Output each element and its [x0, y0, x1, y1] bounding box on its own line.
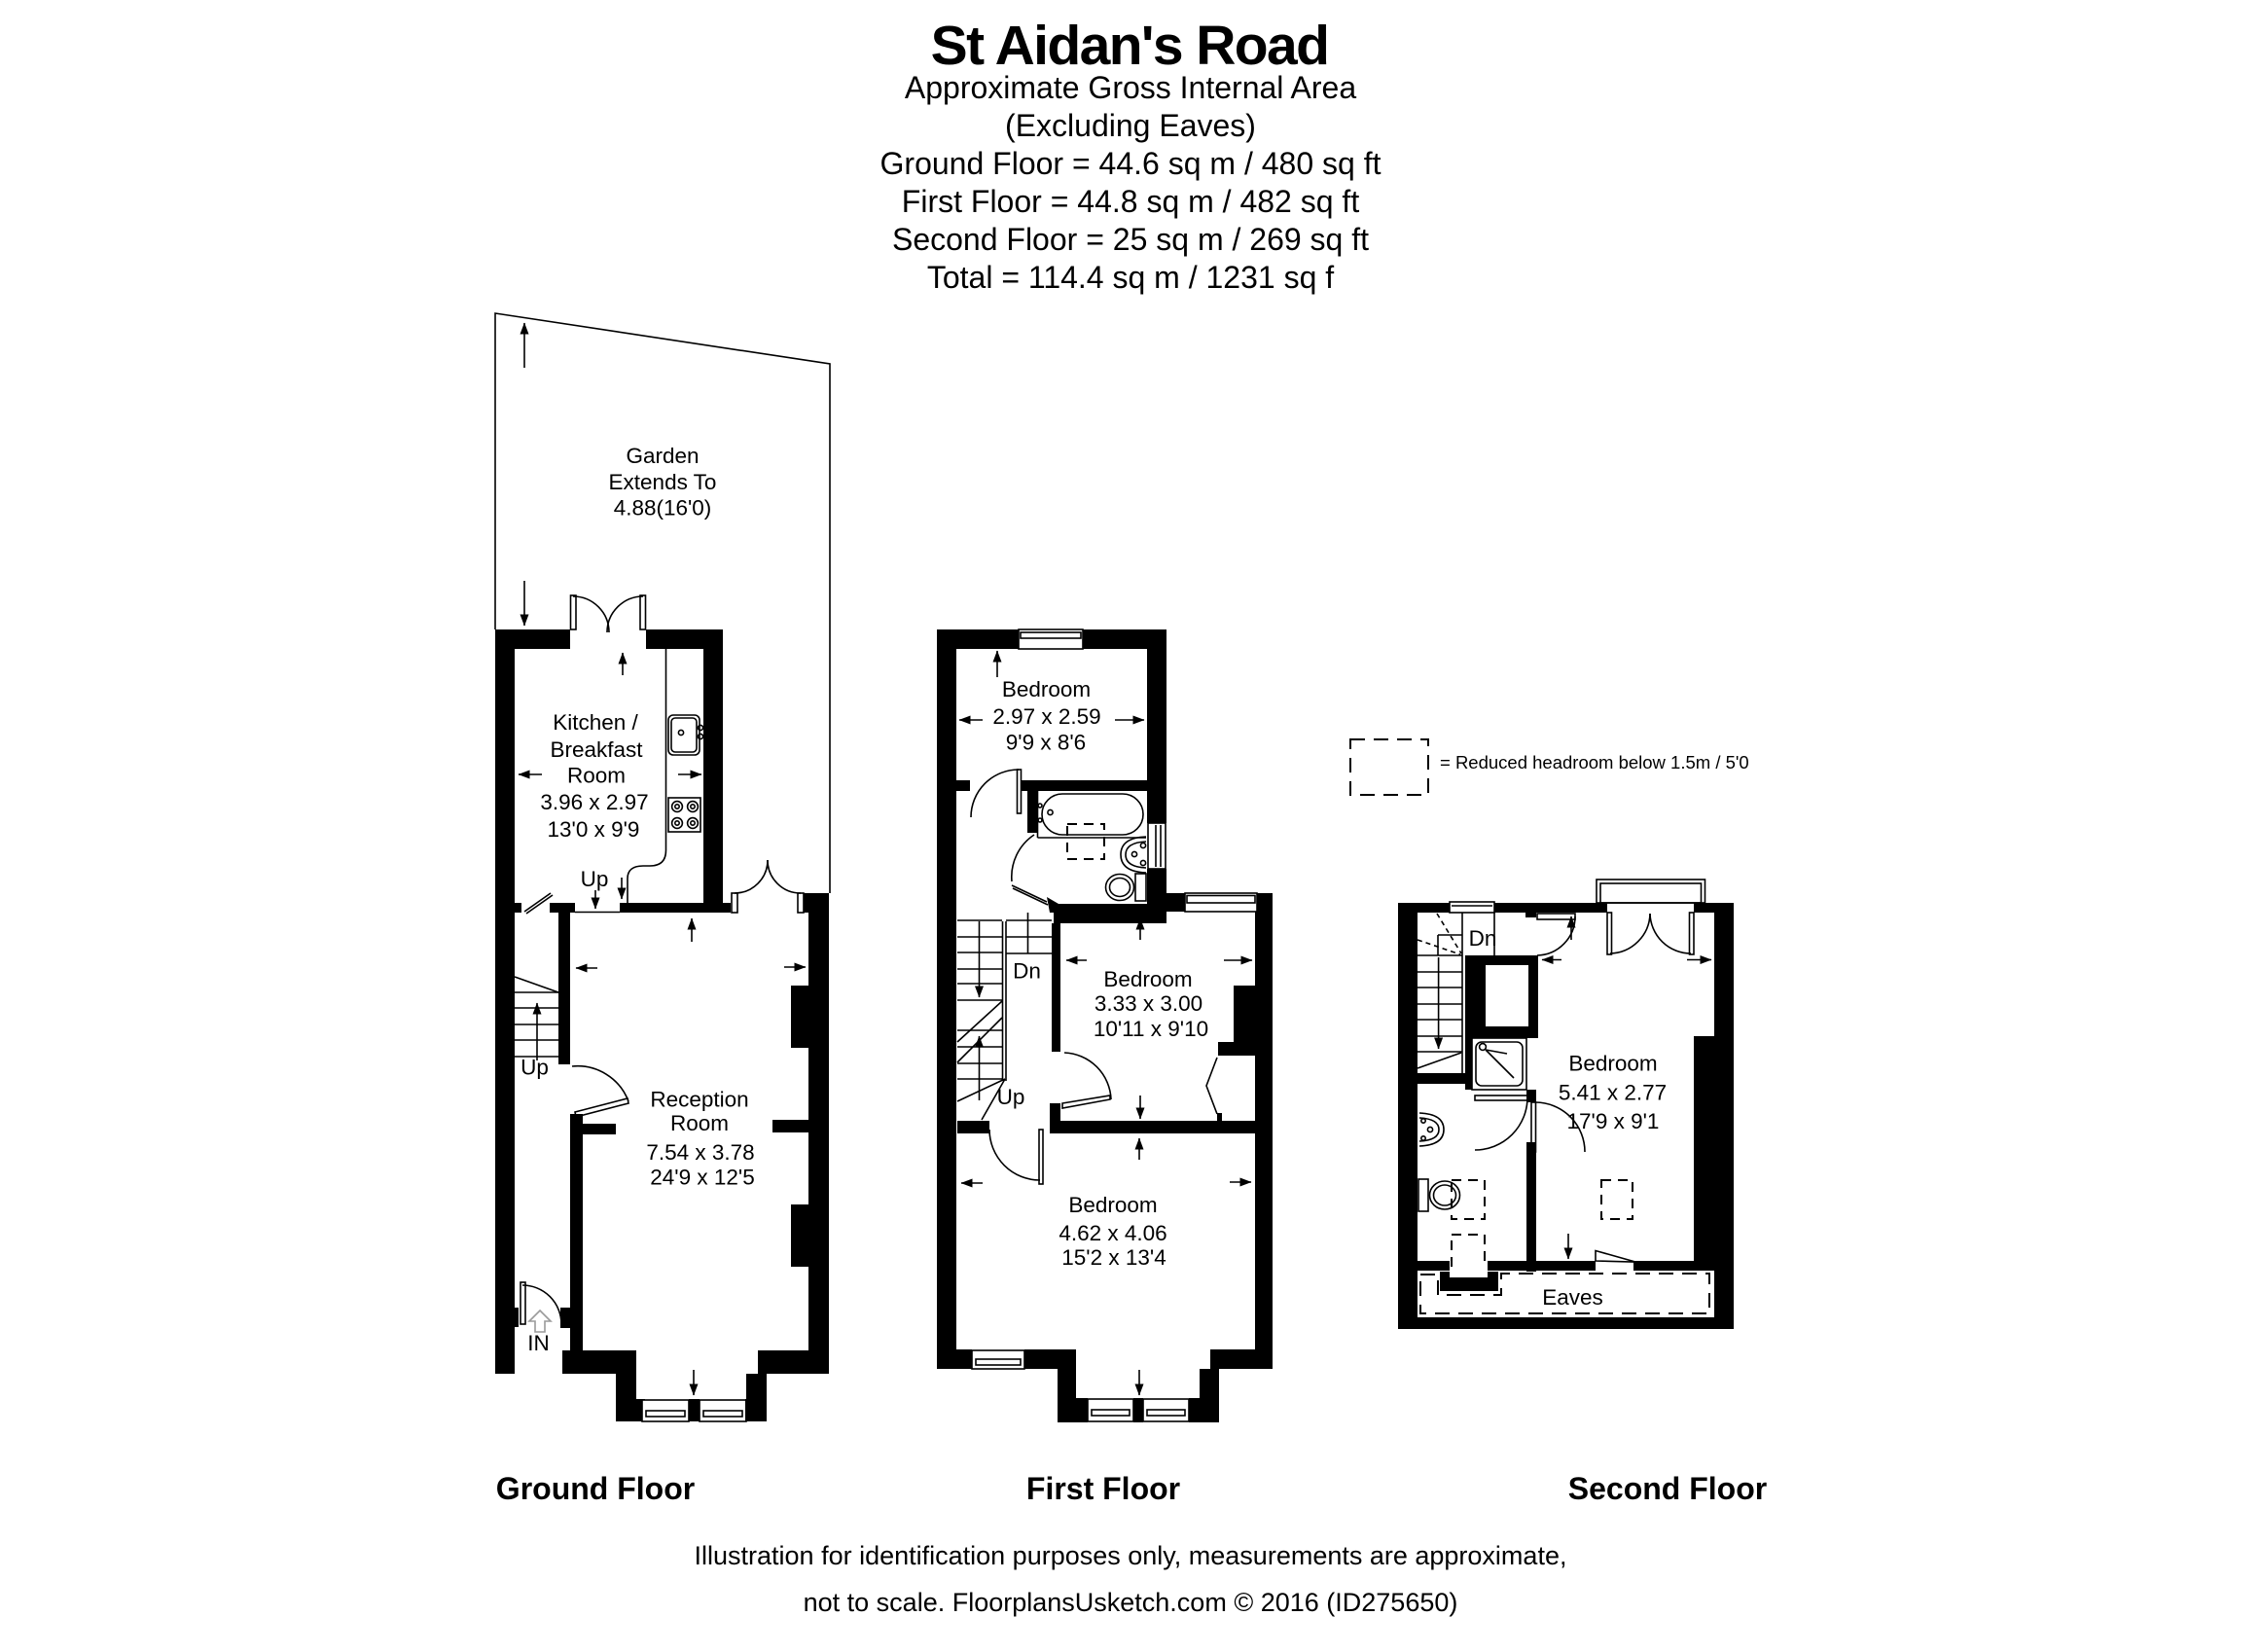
- svg-text:3.96 x 2.97: 3.96 x 2.97: [540, 790, 648, 814]
- svg-text:IN: IN: [527, 1331, 550, 1355]
- svg-text:24'9 x 12'5: 24'9 x 12'5: [650, 1166, 754, 1190]
- svg-text:Second Floor = 25 sq m / 269 s: Second Floor = 25 sq m / 269 sq ft: [892, 222, 1369, 257]
- svg-text:13'0 x 9'9: 13'0 x 9'9: [548, 817, 640, 842]
- svg-text:Bedroom: Bedroom: [1002, 677, 1091, 701]
- svg-text:Bedroom: Bedroom: [1568, 1052, 1657, 1076]
- svg-text:Kitchen /: Kitchen /: [553, 710, 638, 735]
- svg-text:10'11 x 9'10: 10'11 x 9'10: [1094, 1017, 1208, 1041]
- svg-text:Second Floor: Second Floor: [1568, 1471, 1767, 1506]
- svg-text:Illustration for identificatio: Illustration for identification purposes…: [695, 1541, 1567, 1570]
- svg-text:Room: Room: [670, 1111, 729, 1135]
- svg-text:15'2 x 13'4: 15'2 x 13'4: [1061, 1245, 1166, 1270]
- svg-text:Ground Floor: Ground Floor: [496, 1471, 695, 1506]
- svg-text:Reception: Reception: [650, 1088, 748, 1112]
- svg-text:Eaves: Eaves: [1542, 1285, 1603, 1310]
- svg-text:First Floor = 44.8 sq m / 482: First Floor = 44.8 sq m / 482 sq ft: [902, 184, 1360, 219]
- svg-text:2.97 x 2.59: 2.97 x 2.59: [992, 704, 1100, 729]
- svg-text:Bedroom: Bedroom: [1103, 967, 1192, 991]
- svg-text:Dn: Dn: [1469, 926, 1497, 951]
- svg-text:Up: Up: [581, 867, 609, 891]
- svg-text:= Reduced headroom below 1.5m: = Reduced headroom below 1.5m / 5'0: [1440, 752, 1749, 772]
- svg-text:Extends To: Extends To: [609, 470, 717, 494]
- svg-text:17'9 x 9'1: 17'9 x 9'1: [1567, 1109, 1660, 1133]
- svg-text:Room: Room: [567, 764, 626, 788]
- svg-text:not to scale. FloorplansUsketc: not to scale. FloorplansUsketch.com © 20…: [804, 1588, 1458, 1617]
- svg-text:St Aidan's Road: St Aidan's Road: [931, 15, 1329, 77]
- svg-text:Up: Up: [520, 1056, 549, 1080]
- svg-text:(Excluding Eaves): (Excluding Eaves): [1005, 108, 1256, 143]
- svg-text:Breakfast: Breakfast: [550, 737, 643, 762]
- svg-text:4.62 x 4.06: 4.62 x 4.06: [1059, 1221, 1166, 1245]
- svg-text:Approximate Gross Internal Are: Approximate Gross Internal Area: [905, 70, 1356, 105]
- svg-text:5.41 x 2.77: 5.41 x 2.77: [1559, 1081, 1667, 1105]
- svg-text:Total = 114.4 sq m / 1231 sq f: Total = 114.4 sq m / 1231 sq f: [927, 260, 1334, 295]
- svg-text:Bedroom: Bedroom: [1068, 1193, 1157, 1217]
- svg-text:9'9 x 8'6: 9'9 x 8'6: [1006, 731, 1086, 755]
- svg-text:3.33 x 3.00: 3.33 x 3.00: [1095, 991, 1202, 1016]
- svg-text:Ground Floor = 44.6 sq m / 480: Ground Floor = 44.6 sq m / 480 sq ft: [880, 146, 1382, 181]
- svg-text:4.88(16'0): 4.88(16'0): [614, 496, 712, 521]
- svg-text:Garden: Garden: [626, 444, 699, 468]
- svg-text:Dn: Dn: [1013, 959, 1041, 984]
- svg-text:7.54 x 3.78: 7.54 x 3.78: [646, 1140, 754, 1165]
- svg-text:First Floor: First Floor: [1026, 1471, 1180, 1506]
- svg-text:Up: Up: [997, 1085, 1025, 1109]
